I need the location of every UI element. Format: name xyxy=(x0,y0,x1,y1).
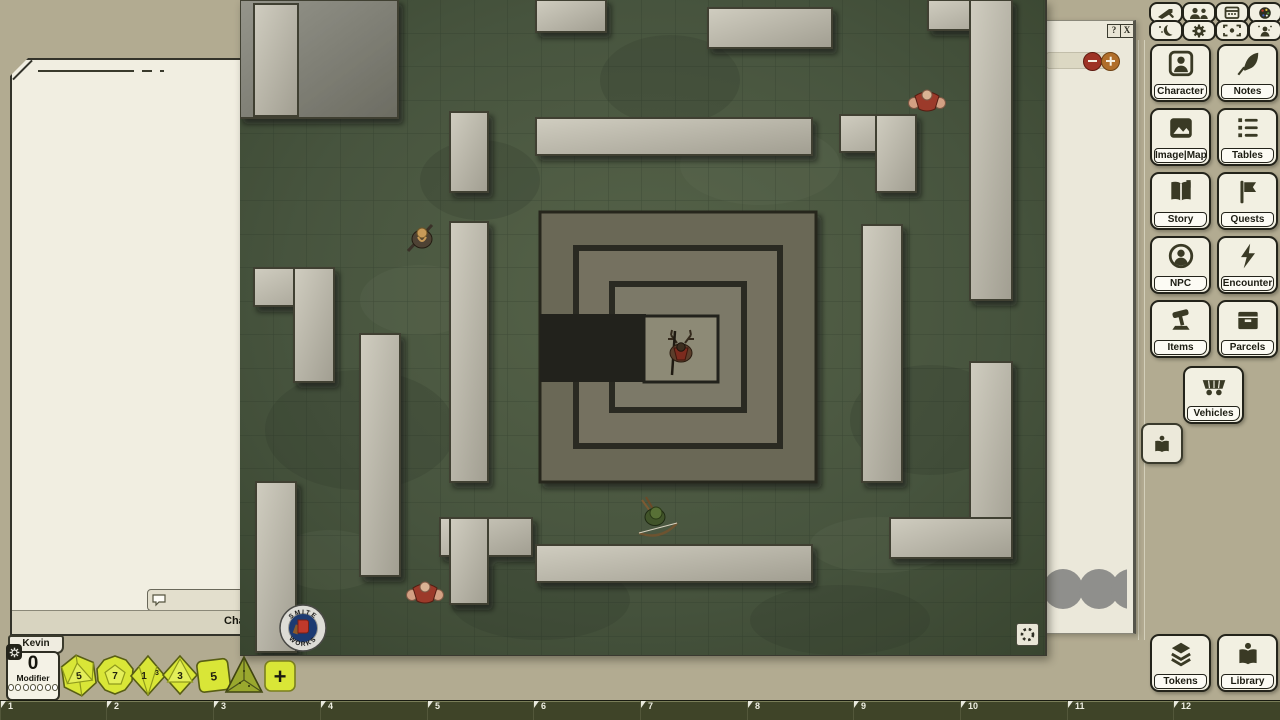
hotkey-slot-10[interactable]: 10 xyxy=(960,701,1068,720)
box-icon xyxy=(1233,306,1263,334)
night-mode-button[interactable] xyxy=(1149,20,1183,41)
sidebar-button-label: Library xyxy=(1221,674,1274,689)
sidebar-button-character[interactable]: Character xyxy=(1150,44,1211,102)
map-mask-button[interactable] xyxy=(1016,623,1039,646)
character-icon xyxy=(1166,50,1196,78)
palette-icon xyxy=(1254,6,1276,20)
divider-line xyxy=(1138,40,1139,640)
sidebar-button-label: Encounter xyxy=(1221,276,1274,291)
chat-title-line xyxy=(38,70,134,72)
sidebar-button-image-map[interactable]: Image|Map xyxy=(1150,108,1211,166)
modifier-settings-button[interactable] xyxy=(6,644,22,660)
wagon-icon xyxy=(1199,372,1229,400)
maze-map-image: SMITE WORKS xyxy=(240,0,1045,655)
smiteworks-logo: SMITE WORKS xyxy=(280,605,326,651)
hotkey-slot-4[interactable]: 4 xyxy=(320,701,428,720)
divider-line xyxy=(1144,40,1145,640)
person-circle-icon xyxy=(1166,242,1196,270)
gear-icon xyxy=(9,647,20,658)
quill-icon xyxy=(1233,50,1263,78)
zoom-out-button[interactable] xyxy=(1083,52,1102,71)
hotkey-slot-12[interactable]: 12 xyxy=(1173,701,1280,720)
sidebar-button-label: Quests xyxy=(1221,212,1274,227)
sidebar-button-label: Character xyxy=(1154,84,1207,99)
module-activation-button[interactable] xyxy=(1141,423,1183,464)
sidebar-button-npc[interactable]: NPC xyxy=(1150,236,1211,294)
hotkey-slot-11[interactable]: 11 xyxy=(1067,701,1174,720)
focus-brackets-icon xyxy=(1221,24,1243,37)
sidebar-button-label: Vehicles xyxy=(1187,406,1240,421)
background-window: ? X xyxy=(1040,20,1136,634)
hotkey-bar: 1 2 3 4 5 6 7 8 9 10 11 12 xyxy=(0,700,1280,720)
token-slots xyxy=(1041,569,1127,611)
die-face: 7 xyxy=(112,671,118,682)
hotkey-slot-3[interactable]: 3 xyxy=(213,701,321,720)
sidebar-button-library[interactable]: Library xyxy=(1217,634,1278,692)
hotkey-slot-9[interactable]: 9 xyxy=(853,701,961,720)
token-slot-circle[interactable] xyxy=(1043,569,1083,609)
sidebar-button-notes[interactable]: Notes xyxy=(1217,44,1278,102)
users-icon xyxy=(1188,7,1210,19)
moon-icon xyxy=(1155,24,1177,37)
sidebar-button-items[interactable]: Items xyxy=(1150,300,1211,358)
die-face: 1 xyxy=(141,671,147,682)
hotkey-slot-5[interactable]: 5 xyxy=(427,701,534,720)
calendar-icon xyxy=(1221,6,1243,19)
help-button[interactable]: ? xyxy=(1107,24,1121,38)
sidebar-button-label: Tables xyxy=(1221,148,1274,163)
add-die-button[interactable]: + xyxy=(259,653,301,699)
sidebar-button-label: Items xyxy=(1154,340,1207,355)
chat-title-dot xyxy=(160,70,164,72)
gear-icon xyxy=(1188,24,1210,38)
fantasy-grounds-desktop: Chat Kevin ? X xyxy=(0,0,1280,720)
close-button[interactable]: X xyxy=(1120,24,1134,38)
sidebar-button-tokens[interactable]: Tokens xyxy=(1150,634,1211,692)
sidebar-button-story[interactable]: Story xyxy=(1150,172,1211,230)
sword-icon xyxy=(1155,7,1177,19)
hotkey-slot-8[interactable]: 8 xyxy=(747,701,854,720)
sidebar-button-label: Image|Map xyxy=(1154,148,1207,163)
gavel-icon xyxy=(1166,306,1196,334)
settings-button[interactable] xyxy=(1182,20,1216,41)
book-person-icon xyxy=(1151,433,1173,455)
modifier-label: Modifier xyxy=(8,674,58,682)
person-sparkles-icon xyxy=(1254,24,1276,37)
hotkey-slot-1[interactable]: 1 xyxy=(0,701,107,720)
sidebar-button-label: Story xyxy=(1154,212,1207,227)
sidebar-button-label: Tokens xyxy=(1154,674,1207,689)
sidebar-button-parcels[interactable]: Parcels xyxy=(1217,300,1278,358)
plus-icon: + xyxy=(274,664,287,689)
image-icon xyxy=(1166,114,1196,142)
character-effects-button[interactable] xyxy=(1248,20,1280,41)
sidebar-button-quests[interactable]: Quests xyxy=(1217,172,1278,230)
map-window[interactable]: SMITE WORKS xyxy=(240,0,1047,656)
hotkey-slot-6[interactable]: 6 xyxy=(533,701,641,720)
open-book-icon xyxy=(1166,178,1196,206)
sidebar-button-label: Parcels xyxy=(1221,340,1274,355)
die-face: 3 xyxy=(177,671,183,682)
layers-icon xyxy=(1166,640,1196,668)
sidebar-button-label: Notes xyxy=(1221,84,1274,99)
sidebar-button-vehicles[interactable]: Vehicles xyxy=(1183,366,1244,424)
flag-icon xyxy=(1233,178,1263,206)
dotted-circle-icon xyxy=(1019,626,1036,643)
sidebar-button-encounter[interactable]: Encounter xyxy=(1217,236,1278,294)
book-person-icon xyxy=(1233,640,1263,668)
sidebar-button-tables[interactable]: Tables xyxy=(1217,108,1278,166)
focus-view-button[interactable] xyxy=(1215,20,1249,41)
sidebar-button-label: NPC xyxy=(1154,276,1207,291)
modifier-slots xyxy=(8,684,58,691)
window-corner-decoration xyxy=(12,60,33,81)
lightning-icon xyxy=(1233,242,1263,270)
hotkey-slot-7[interactable]: 7 xyxy=(640,701,748,720)
list-icon xyxy=(1233,114,1263,142)
zoom-in-button[interactable] xyxy=(1101,52,1120,71)
speech-bubble-icon xyxy=(151,593,169,607)
chat-title-dash xyxy=(142,70,152,72)
hotkey-slot-2[interactable]: 2 xyxy=(106,701,214,720)
